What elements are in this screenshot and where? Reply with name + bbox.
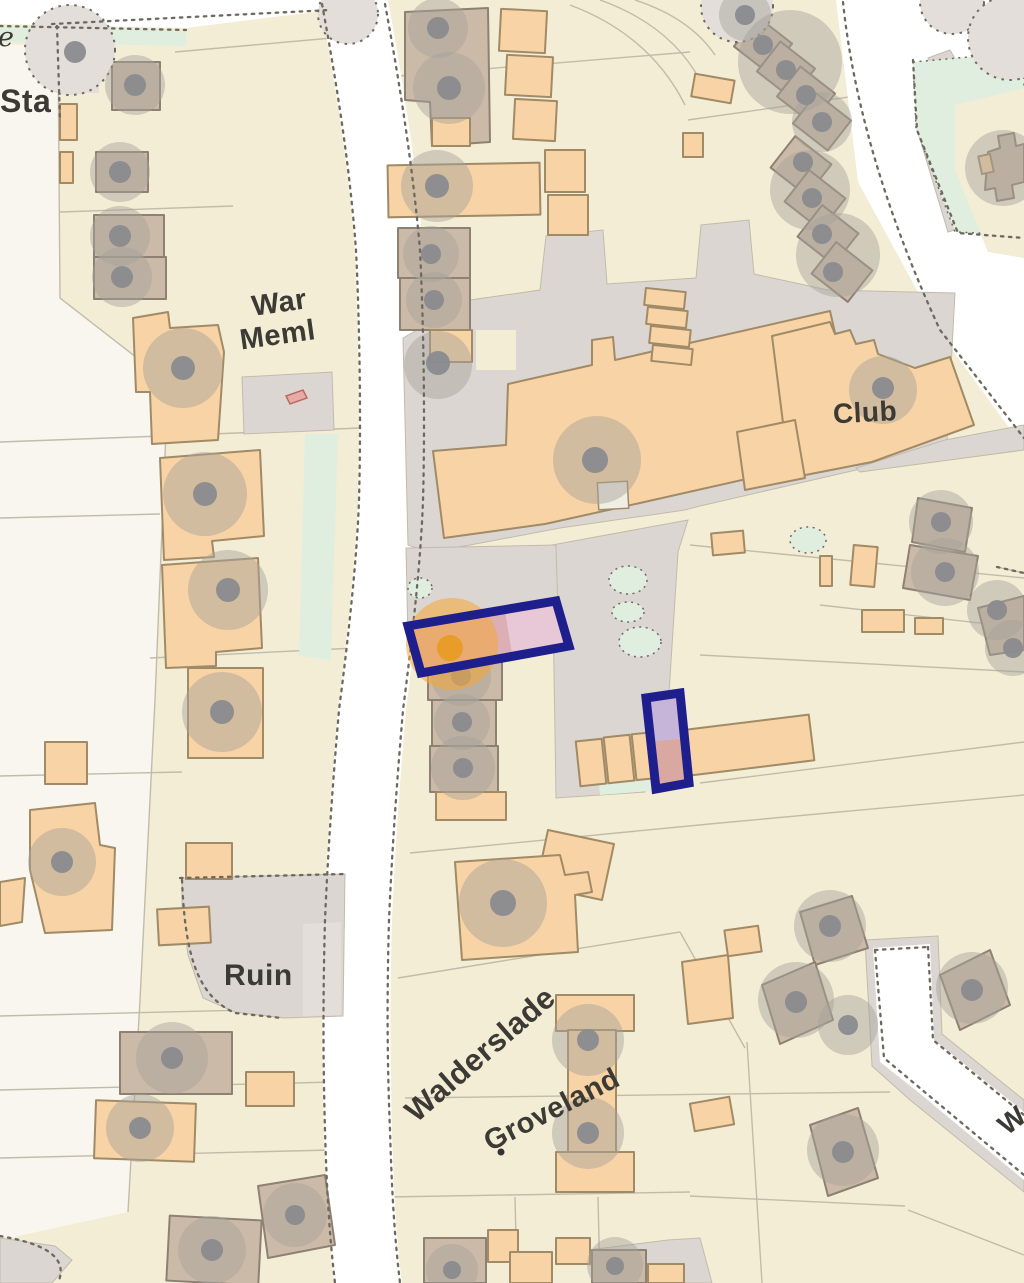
label-e: e xyxy=(0,22,14,53)
map-canvas[interactable]: Sta e War Meml Club Ruin Walderslade Gro… xyxy=(0,0,1024,1283)
location-map[interactable]: Sta e War Meml Club Ruin Walderslade Gro… xyxy=(0,0,1024,1283)
label-sta: Sta xyxy=(0,83,51,119)
label-club: Club xyxy=(832,395,898,429)
label-ruin: Ruin xyxy=(224,959,293,992)
selected-property-marker-dot xyxy=(437,635,463,661)
